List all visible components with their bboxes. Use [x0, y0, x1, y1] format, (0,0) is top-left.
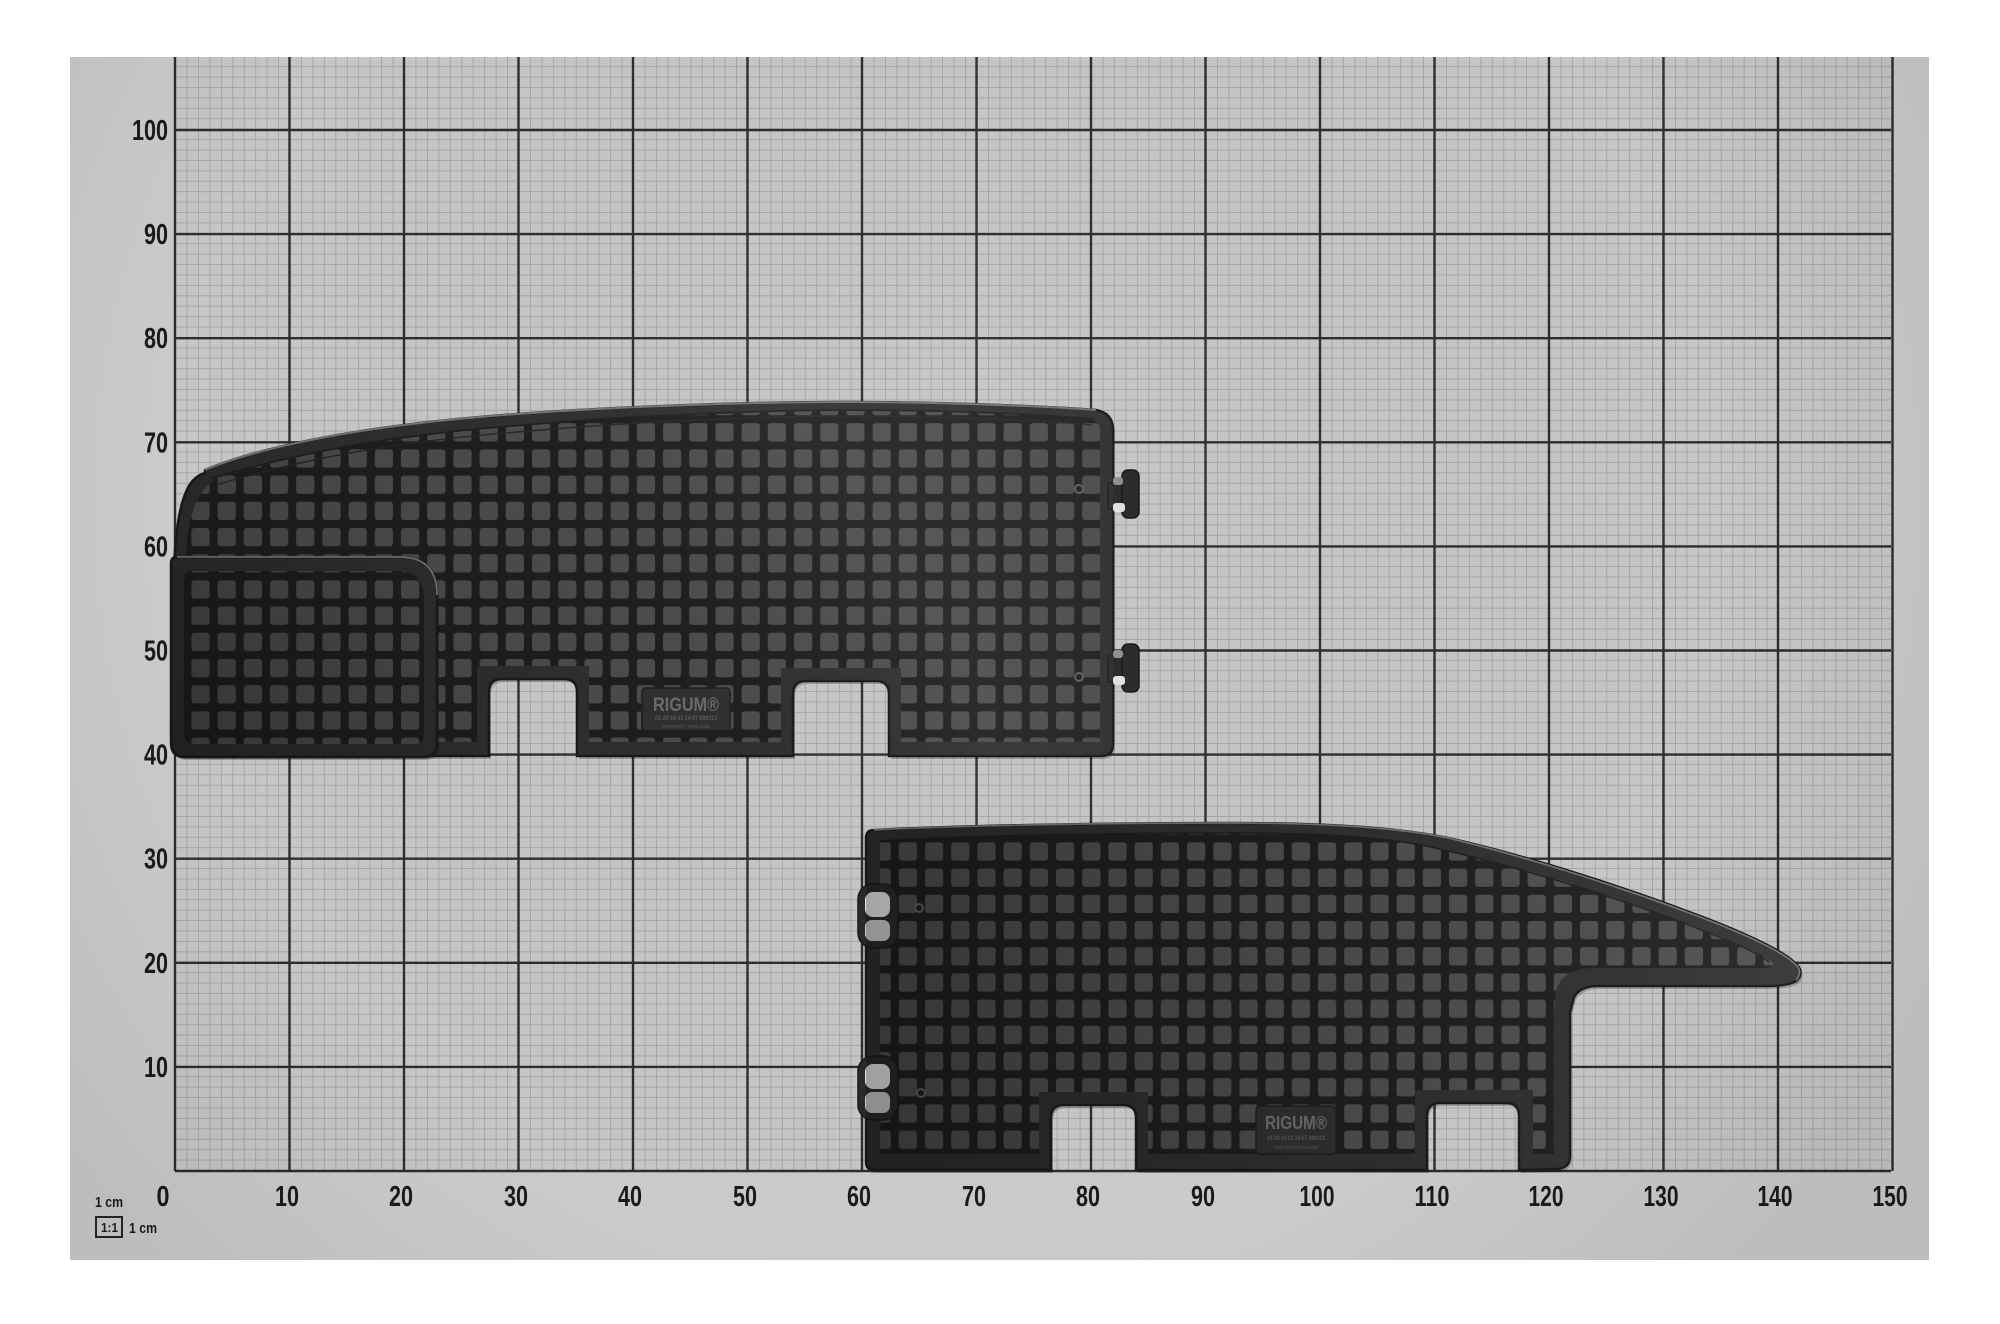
- svg-text:1 cm: 1 cm: [129, 1220, 157, 1237]
- svg-text:40: 40: [618, 1181, 642, 1213]
- svg-text:100: 100: [1300, 1181, 1335, 1213]
- svg-text:130: 130: [1644, 1181, 1679, 1213]
- svg-text:120: 120: [1529, 1181, 1564, 1213]
- svg-text:90: 90: [144, 219, 168, 251]
- svg-text:50: 50: [144, 636, 168, 668]
- svg-text:150: 150: [1873, 1181, 1908, 1213]
- svg-text:50: 50: [733, 1181, 757, 1213]
- svg-text:90: 90: [1191, 1181, 1215, 1213]
- svg-text:20: 20: [144, 948, 168, 980]
- svg-text:70: 70: [144, 427, 168, 459]
- svg-text:100: 100: [132, 115, 168, 147]
- svg-text:1:1: 1:1: [101, 1220, 118, 1235]
- svg-text:60: 60: [144, 531, 168, 563]
- svg-text:10: 10: [275, 1181, 299, 1213]
- svg-text:0: 0: [157, 1181, 170, 1213]
- svg-text:110: 110: [1415, 1181, 1450, 1213]
- svg-text:80: 80: [144, 323, 168, 355]
- svg-text:70: 70: [962, 1181, 986, 1213]
- svg-text:140: 140: [1758, 1181, 1793, 1213]
- svg-text:40: 40: [144, 740, 168, 772]
- svg-text:20: 20: [389, 1181, 413, 1213]
- svg-text:60: 60: [847, 1181, 871, 1213]
- svg-text:80: 80: [1076, 1181, 1100, 1213]
- svg-text:1 cm: 1 cm: [95, 1194, 123, 1211]
- svg-text:30: 30: [504, 1181, 528, 1213]
- svg-text:30: 30: [144, 844, 168, 876]
- svg-text:10: 10: [144, 1052, 168, 1084]
